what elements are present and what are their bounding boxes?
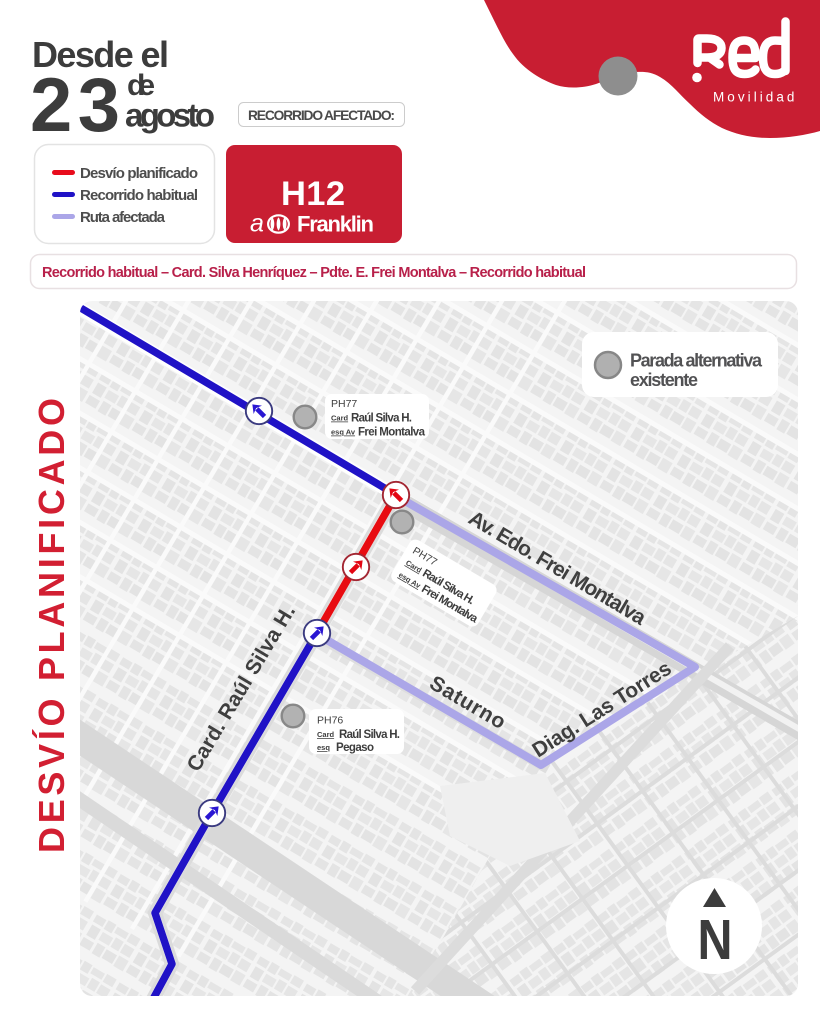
svg-text:Raúl Silva H.: Raúl Silva H.	[339, 729, 400, 741]
svg-text:Card: Card	[331, 414, 349, 423]
svg-text:PH77: PH77	[331, 398, 357, 410]
svg-text:RECORRIDO AFECTADO:: RECORRIDO AFECTADO:	[248, 108, 395, 123]
svg-text:H12: H12	[281, 175, 345, 213]
svg-text:a: a	[250, 210, 264, 238]
svg-text:Recorrido habitual – Card. Si: Recorrido habitual – Card. Silva Henríqu…	[42, 265, 586, 281]
svg-text:Card: Card	[317, 730, 335, 739]
svg-text:Recorrido habitual: Recorrido habitual	[80, 187, 198, 204]
svg-text:DESVÍO PLANIFICADO: DESVÍO PLANIFICADO	[31, 397, 72, 853]
svg-text:Desvío planificado: Desvío planificado	[80, 165, 198, 182]
svg-text:Ruta afectada: Ruta afectada	[80, 209, 166, 226]
svg-text:23: 23	[30, 63, 120, 148]
svg-text:Pegaso: Pegaso	[336, 742, 374, 754]
svg-text:Parada alternativa: Parada alternativa	[630, 351, 763, 371]
svg-text:esq: esq	[317, 743, 330, 752]
svg-text:N: N	[698, 908, 733, 972]
svg-text:Franklin: Franklin	[297, 212, 374, 237]
svg-text:PH76: PH76	[317, 715, 343, 727]
svg-text:Movilidad: Movilidad	[713, 90, 796, 105]
svg-text:agosto: agosto	[125, 97, 215, 134]
svg-text:Raúl Silva H.: Raúl Silva H.	[351, 413, 412, 425]
svg-text:Frei Montalva: Frei Montalva	[358, 427, 426, 439]
svg-text:existente: existente	[630, 370, 698, 390]
svg-text:esq Av: esq Av	[331, 428, 356, 437]
